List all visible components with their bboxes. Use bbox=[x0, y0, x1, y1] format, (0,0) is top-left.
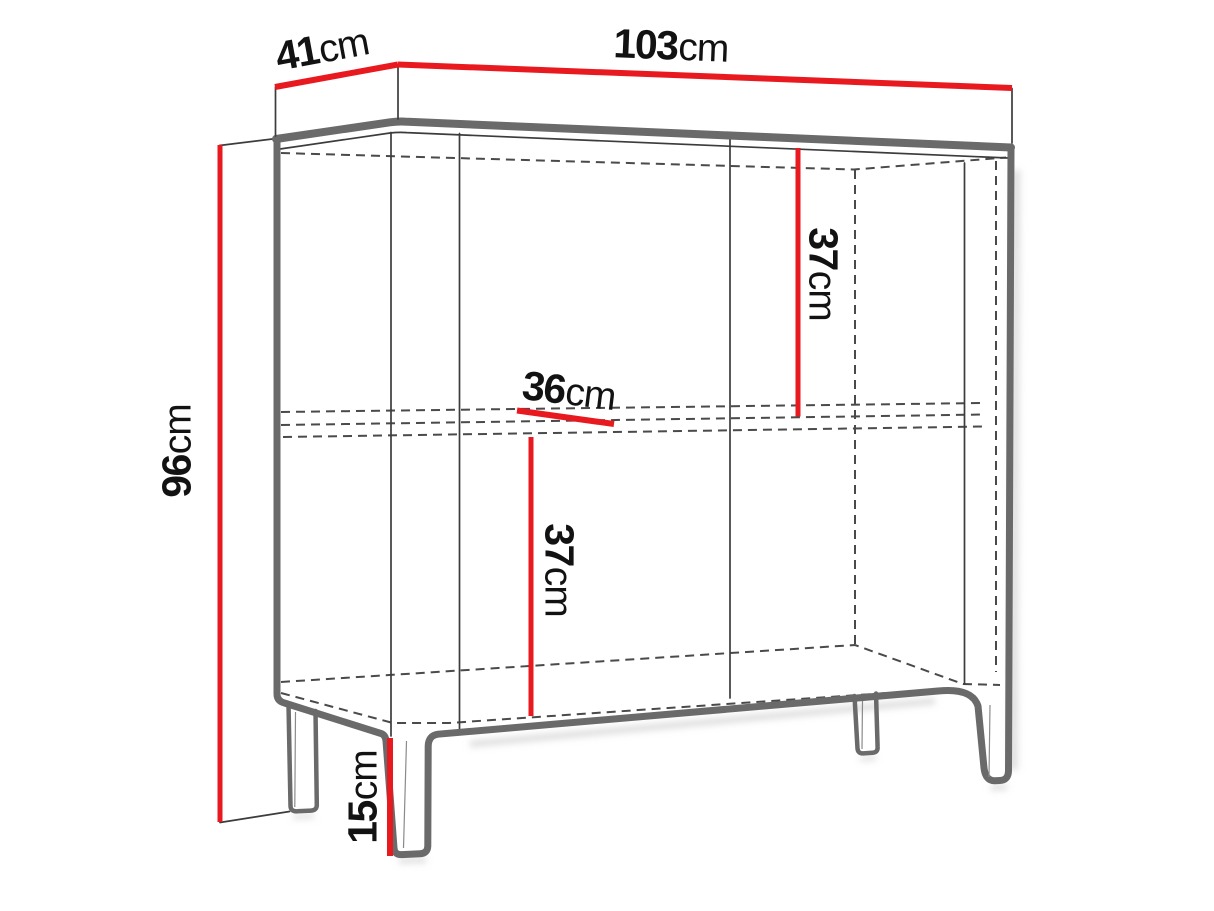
upper-compartment-unit: cm bbox=[801, 271, 844, 321]
furniture-dimension-diagram: 41cm 103cm 96cm 37cm 36cm 37cm 15cm bbox=[0, 0, 1214, 911]
interior-back-top-edge-dashed bbox=[281, 153, 1006, 170]
height-unit: cm bbox=[157, 404, 200, 454]
shadow-front-left-leg bbox=[399, 860, 426, 861]
back-right-leg bbox=[855, 694, 878, 754]
shelf-back-edge-dashed bbox=[281, 403, 984, 412]
front-left-leg-highlight bbox=[404, 741, 407, 848]
bottom-back-edge-dashed bbox=[281, 645, 1000, 685]
shadow-front-right-leg bbox=[991, 787, 1007, 788]
floor-connector-line bbox=[220, 812, 290, 823]
back-left-leg-highlight bbox=[295, 712, 296, 807]
shelf-front-top-edge-dashed bbox=[281, 415, 984, 426]
depth-value: 41 bbox=[272, 27, 322, 80]
upper-compartment-value: 37 bbox=[801, 227, 847, 270]
height-dimension-label: 96cm bbox=[157, 404, 198, 498]
width-dimension-label: 103cm bbox=[613, 23, 729, 69]
width-value: 103 bbox=[613, 20, 679, 69]
top-panel-edge bbox=[276, 121, 1011, 147]
cabinet-outline bbox=[276, 121, 1011, 854]
drop-shadows bbox=[293, 170, 1016, 861]
upper-compartment-label: 37cm bbox=[803, 227, 844, 321]
width-unit: cm bbox=[678, 26, 730, 71]
hidden-edges bbox=[281, 153, 1006, 723]
leg-height-unit: cm bbox=[343, 750, 386, 800]
depth-unit: cm bbox=[315, 20, 372, 71]
shelf-depth-value: 36 bbox=[520, 362, 568, 413]
front-right-leg-highlight bbox=[989, 705, 990, 777]
shadow-back-left-leg bbox=[293, 816, 314, 817]
lower-compartment-label: 37cm bbox=[539, 523, 580, 617]
lower-compartment-unit: cm bbox=[537, 567, 580, 617]
leg-height-value: 15 bbox=[340, 801, 386, 844]
back-right-leg-highlight bbox=[862, 700, 863, 749]
back-left-leg bbox=[289, 704, 317, 811]
height-value: 96 bbox=[154, 455, 200, 498]
shelf-depth-unit: cm bbox=[563, 370, 618, 419]
shadow-back-right-leg bbox=[860, 758, 876, 759]
leg-height-label: 15cm bbox=[343, 750, 384, 844]
shelf-front-bottom-edge-dashed bbox=[283, 427, 984, 438]
left-panel-top-edge bbox=[220, 139, 277, 146]
dimension-lines bbox=[220, 65, 1012, 857]
lower-compartment-value: 37 bbox=[537, 523, 583, 566]
